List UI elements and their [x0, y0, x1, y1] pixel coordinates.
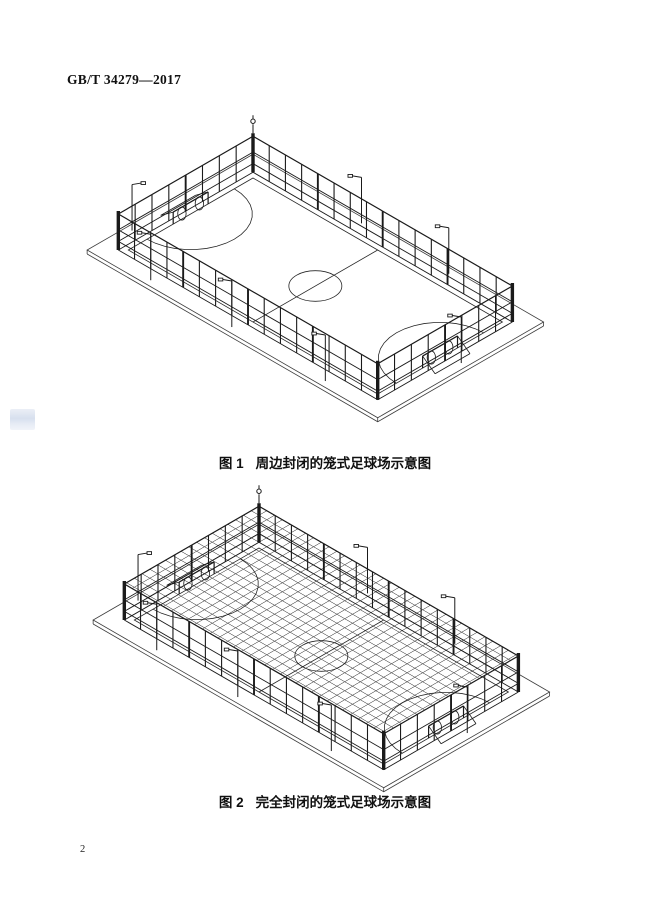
figure-1-caption: 图 1周边封闭的笼式足球场示意图	[0, 452, 650, 472]
figure-2-caption: 图 2完全封闭的笼式足球场示意图	[0, 791, 650, 811]
figure-2-caption-label: 图 2	[219, 795, 244, 810]
figure-2-caption-text: 完全封闭的笼式足球场示意图	[256, 795, 432, 810]
page-number: 2	[80, 844, 85, 855]
figure-1-caption-label: 图 1	[219, 456, 244, 471]
watermark-smudge	[10, 409, 35, 430]
cage-court-svg	[92, 478, 562, 800]
cage-court-svg	[86, 108, 556, 430]
figure-1-caption-text: 周边封闭的笼式足球场示意图	[256, 456, 432, 471]
page: { "colors": { "ink": "#1a1a1a", "paper":…	[0, 0, 650, 920]
figure-2-drawing	[92, 478, 562, 800]
figure-1-drawing	[86, 108, 556, 430]
standard-number-header: GB/T 34279—2017	[67, 72, 181, 88]
